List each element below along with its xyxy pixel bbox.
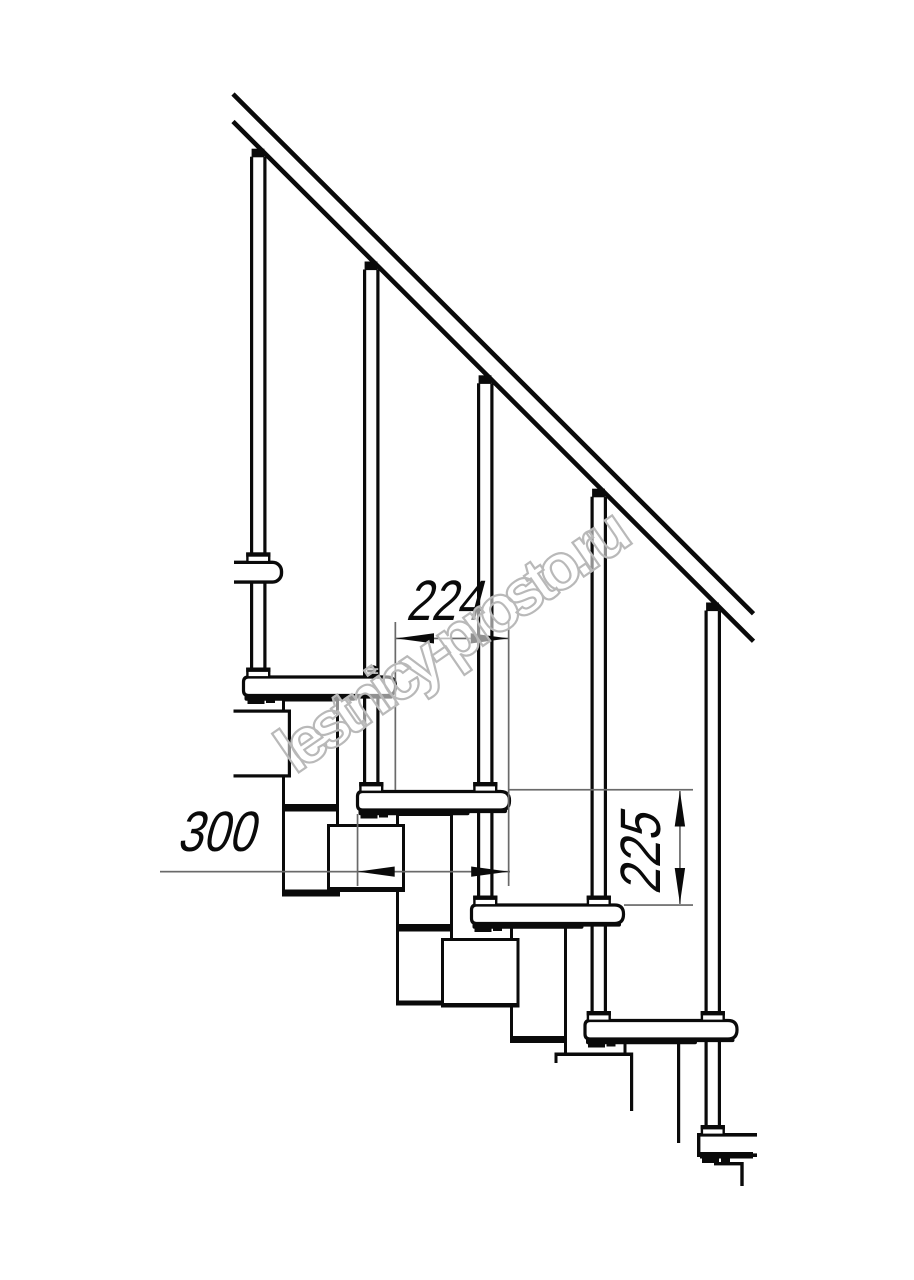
svg-text:225: 225 xyxy=(609,801,673,898)
svg-text:300: 300 xyxy=(173,800,267,864)
svg-text:lestnicy-prosto.ru: lestnicy-prosto.ru xyxy=(262,495,641,787)
